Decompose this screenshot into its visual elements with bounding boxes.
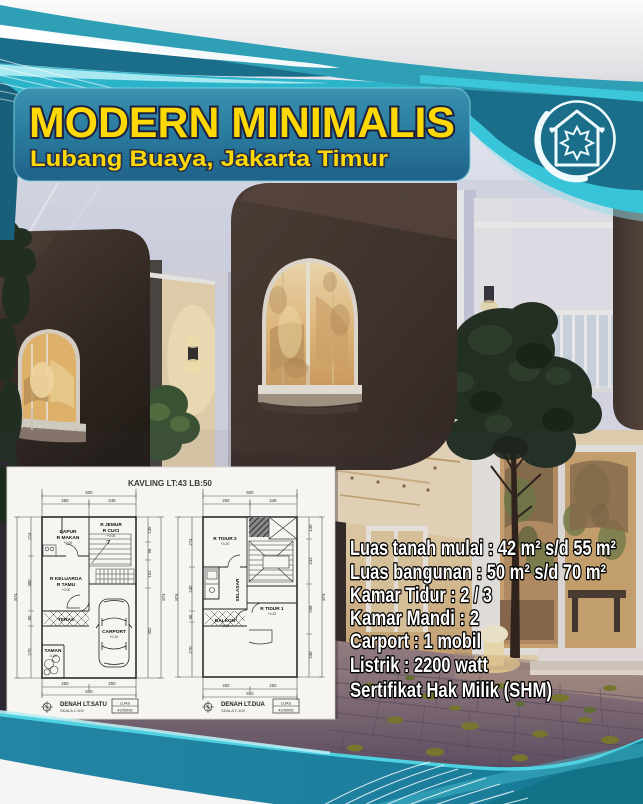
svg-text:240: 240 [188, 585, 193, 593]
svg-text:KAVLING LT:43 LB:50: KAVLING LT:43 LB:50 [128, 479, 213, 488]
svg-text:248: 248 [269, 498, 277, 503]
svg-text:135: 135 [308, 524, 313, 532]
svg-text:+0.05: +0.05 [107, 534, 116, 538]
svg-text:MODERN MINIMALIS: MODERN MINIMALIS [29, 99, 455, 146]
svg-text:LUAS: LUAS [120, 701, 131, 706]
svg-text:SKALA 1:100: SKALA 1:100 [221, 708, 246, 713]
svg-text:270: 270 [27, 648, 32, 656]
svg-text:DAPUR: DAPUR [59, 529, 77, 535]
svg-text:43/50M2: 43/50M2 [278, 708, 294, 713]
svg-text:Lubang Buaya, Jakarta Timur: Lubang Buaya, Jakarta Timur [30, 146, 388, 171]
svg-text:SKALA 1:100: SKALA 1:100 [60, 708, 85, 713]
svg-text:SELASAR: SELASAR [235, 578, 241, 601]
svg-text:Listrik : 2200 watt: Listrik : 2200 watt [350, 654, 488, 677]
svg-text:250: 250 [108, 681, 116, 686]
svg-text:+0.00: +0.00 [62, 588, 71, 592]
svg-text:LUAS: LUAS [281, 701, 292, 706]
svg-text:874: 874 [13, 593, 18, 601]
svg-text:98: 98 [147, 548, 152, 553]
svg-text:274: 274 [188, 538, 193, 546]
svg-text:250: 250 [61, 681, 69, 686]
svg-text:302: 302 [147, 627, 152, 635]
svg-text:+3.20: +3.20 [221, 542, 230, 546]
svg-text:Luas tanah mulai : 42 m² s/d 5: Luas tanah mulai : 42 m² s/d 55 m² [350, 537, 616, 560]
svg-text:300: 300 [27, 579, 32, 587]
svg-text:248: 248 [108, 498, 116, 503]
svg-text:298: 298 [308, 605, 313, 613]
svg-text:243: 243 [308, 557, 313, 565]
svg-text:60: 60 [188, 614, 193, 619]
svg-text:Carport : 1 mobil: Carport : 1 mobil [350, 630, 481, 653]
svg-text:135: 135 [147, 526, 152, 534]
svg-text:240: 240 [308, 651, 313, 659]
svg-text:250: 250 [61, 498, 69, 503]
svg-text:Kamar Tidur : 2 / 3: Kamar Tidur : 2 / 3 [350, 584, 492, 607]
svg-text:R KELUARGA: R KELUARGA [50, 576, 83, 582]
svg-text:500: 500 [246, 691, 254, 696]
svg-text:152: 152 [147, 570, 152, 578]
svg-text:250: 250 [269, 683, 277, 688]
svg-text:-0.05: -0.05 [49, 654, 57, 658]
svg-text:874: 874 [161, 593, 166, 601]
svg-text:270: 270 [188, 646, 193, 654]
svg-text:+0.10: +0.10 [110, 635, 119, 639]
svg-text:+0.00: +0.00 [64, 541, 73, 545]
svg-text:Sertifikat Hak Milik (SHM): Sertifikat Hak Milik (SHM) [350, 679, 552, 702]
svg-text:80: 80 [27, 615, 32, 620]
svg-text:500: 500 [246, 490, 254, 495]
svg-text:TERAS: TERAS [58, 617, 75, 623]
svg-text:R JEMUR: R JEMUR [100, 522, 122, 528]
svg-text:500: 500 [85, 490, 93, 495]
svg-text:+3.05: +3.05 [221, 624, 230, 628]
svg-text:+3.20: +3.20 [268, 612, 277, 616]
svg-text:214: 214 [27, 532, 32, 540]
svg-text:250: 250 [222, 683, 230, 688]
svg-text:250: 250 [222, 498, 230, 503]
svg-text:874: 874 [174, 593, 179, 601]
svg-text:500: 500 [85, 689, 93, 694]
svg-text:43/50M2: 43/50M2 [117, 708, 133, 713]
svg-text:Kamar Mandi : 2: Kamar Mandi : 2 [350, 607, 479, 630]
svg-text:874: 874 [321, 593, 326, 601]
svg-text:Luas bangunan : 50 m² s/d 70 m: Luas bangunan : 50 m² s/d 70 m² [350, 561, 606, 584]
